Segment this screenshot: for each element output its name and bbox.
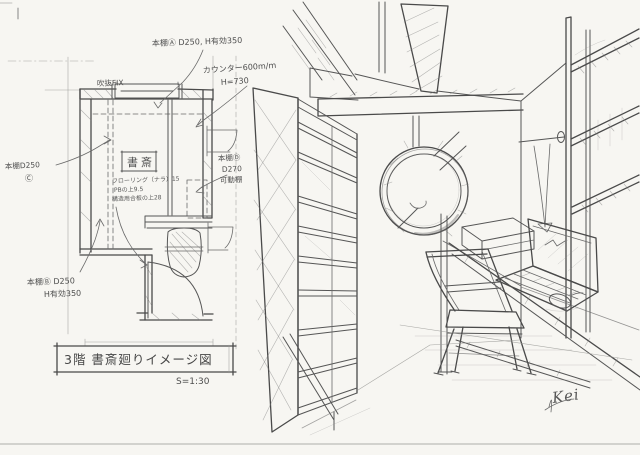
plan-door [148,262,203,318]
desk-sketch [438,214,640,390]
scanned-sketch-sheet: 本棚Ⓐ D250, H有効350 カウンター600m/m H=730 吹抜FIX… [0,0,640,455]
plan-chair [165,228,203,277]
column-sketch [401,4,448,93]
round-window-sketch [380,132,469,236]
floor-note-line2: PBの上9.5 [114,185,144,194]
plan-interior [85,100,213,346]
fix-window-label: 吹抜FIX [97,77,124,88]
beam-sketch [318,88,523,338]
counter-label-line2: H=730 [221,76,250,87]
drawing-scale: S=1:30 [176,377,210,387]
mouse-sketch [546,291,583,311]
counter-label-line1: カウンター600m/m [203,61,277,75]
right-shelves-sketch [566,17,639,338]
floor-sketch [302,325,632,435]
lamp-sketch [519,132,565,235]
perspective-view [253,2,640,435]
shelf-d-label-line2: D270 [222,164,243,174]
shelf-c-label-line2: Ⓒ [25,174,33,183]
drawing-title: 3階 書斎廻りイメージ図 [64,352,213,367]
room-label: 書斎 [127,155,155,169]
printer-box-sketch [462,218,534,259]
shelf-a-label: 本棚Ⓐ D250, H有効350 [152,35,243,48]
bookshelf-sketch [253,88,357,432]
shelf-d-label-line3: 可動棚 [220,174,243,185]
title-block: 3階 書斎廻りイメージ図 S=1:30 [54,343,236,387]
sketch-canvas: 本棚Ⓐ D250, H有効350 カウンター600m/m H=730 吹抜FIX… [0,0,640,455]
floor-note-line3: 構造用合板の上28 [112,193,162,203]
shelf-b-label-line2: H有効350 [44,288,82,299]
signature-group: Kei [545,385,581,412]
shelf-c-label-line1: 本棚D250 [5,159,41,171]
floor-note-line1: フローリング（ナラ）15 [112,175,180,185]
shelf-b-label-line1: 本棚Ⓑ D250 [27,275,75,287]
chair-sketch [426,249,536,375]
shelf-d-label-line1: 本棚Ⓓ [218,152,241,163]
signature: Kei [550,385,581,407]
